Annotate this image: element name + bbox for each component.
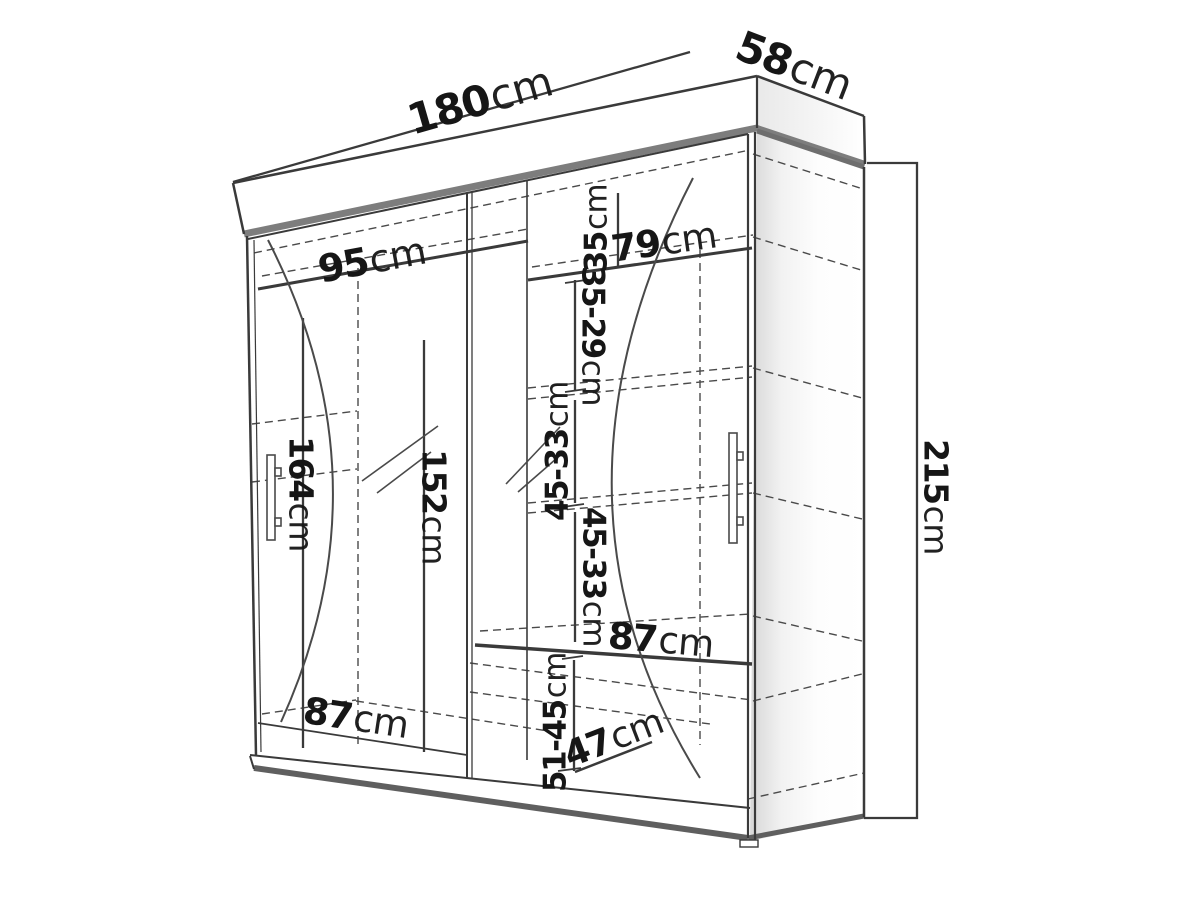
right-handle-tab-top: [737, 452, 743, 460]
dim-shelf-gap-upper: 45-33cm: [543, 381, 574, 521]
door-handles: [267, 433, 743, 543]
dim-height-total: 215cm: [920, 439, 953, 555]
height-dimension-bracket: [864, 163, 917, 818]
dim-shelf-gap-lower-unit: cm: [576, 601, 612, 647]
dim-shelf-gap-top-value: 35-29: [575, 266, 611, 358]
plinth-bottom-edge: [254, 768, 748, 838]
dim-mirror-height-value: 152: [415, 449, 454, 513]
left-handle-tab-bottom: [275, 518, 281, 526]
dim-right-shelf-width-value: 87: [606, 614, 658, 661]
dim-bottom-section-height-unit: cm: [538, 652, 574, 698]
dim-right-shelf-width-unit: cm: [657, 618, 716, 666]
dim-shelf-gap-lower: 45-33cm: [578, 507, 609, 647]
dim-shelf-gap-lower-value: 45-33: [576, 507, 612, 599]
dim-shelf-gap-upper-value: 45-33: [540, 429, 576, 521]
dim-left-interior-height-value: 164: [282, 436, 321, 500]
dim-left-bottom-width-unit: cm: [350, 696, 411, 747]
dim-left-section-width-value: 95: [314, 239, 371, 291]
dim-top-cubby-height: 35cm: [582, 184, 613, 272]
dim-mirror-height: 152cm: [418, 449, 451, 565]
dim-left-interior-height: 164cm: [285, 436, 318, 552]
dim-right-section-width-unit: cm: [659, 213, 720, 263]
right-handle-tab-bottom: [737, 517, 743, 525]
dim-height-total-unit: cm: [917, 506, 956, 555]
right-door-handle: [729, 433, 737, 543]
dashed-right-floor-a: [470, 663, 752, 700]
dim-shelf-gap-top: 35-29cm: [577, 266, 608, 406]
wardrobe-diagram: 180cm 58cm 215cm 95cm 79cm 35cm 35-29cm …: [0, 0, 1200, 900]
dim-left-bottom-width-value: 87: [300, 689, 354, 739]
left-door-handle: [267, 455, 275, 540]
plinth-left-step: [250, 756, 254, 769]
crown-right-back-edge: [864, 116, 865, 164]
left-handle-tab-top: [275, 468, 281, 476]
dim-shelf-gap-top-unit: cm: [575, 360, 611, 406]
dim-top-cubby-height-unit: cm: [579, 184, 615, 230]
dim-bottom-section-height: 51-45cm: [541, 652, 572, 792]
dim-shelf-gap-upper-unit: cm: [540, 381, 576, 427]
dashed-left-rail-a: [252, 411, 357, 424]
dim-left-interior-height-unit: cm: [282, 503, 321, 552]
dim-mirror-height-unit: cm: [415, 516, 454, 565]
dim-right-shelf-width: 87cm: [607, 617, 716, 663]
dim-height-total-value: 215: [917, 439, 956, 503]
dim-right-section-width-value: 79: [609, 221, 663, 270]
front-right-foot: [740, 840, 758, 847]
dashed-right-floor-b: [470, 692, 710, 724]
side-panel-face: [750, 131, 864, 841]
